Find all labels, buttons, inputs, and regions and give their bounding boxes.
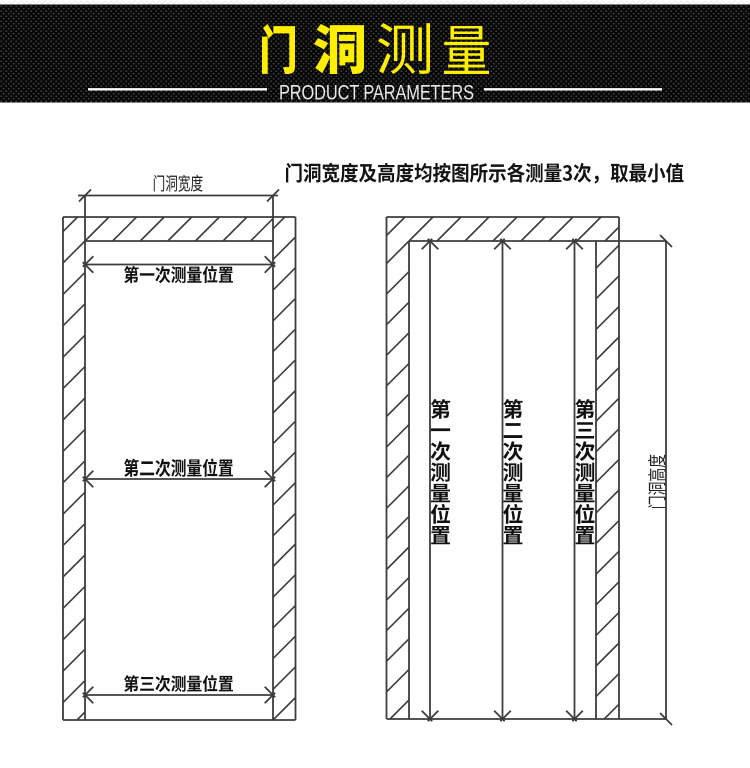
- svg-text:PRODUCT PARAMETERS: PRODUCT PARAMETERS: [279, 80, 474, 103]
